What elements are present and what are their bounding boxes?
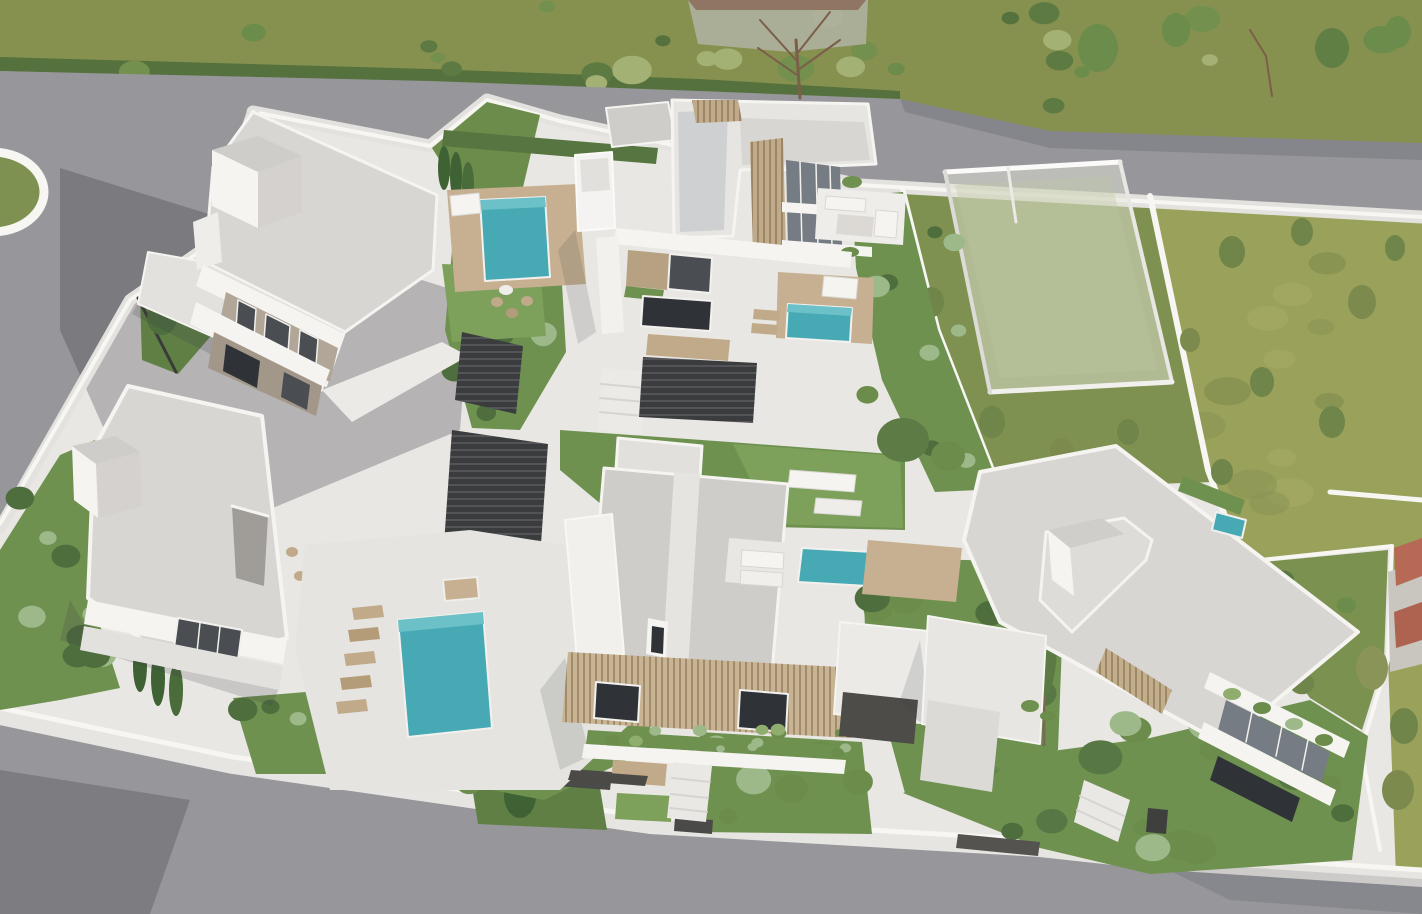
scene-root <box>0 0 1422 914</box>
field-mottle <box>1267 449 1296 467</box>
scrub-bushes <box>420 40 437 52</box>
scrub-bushes <box>655 35 670 46</box>
villa5-ramp <box>920 700 1000 792</box>
villa4-ladder <box>651 626 664 654</box>
poolB-lounger-2 <box>751 323 778 335</box>
villa3-table-1 <box>286 547 298 557</box>
poolA-pouf-2 <box>506 308 518 318</box>
poolA-pouf-3 <box>521 296 533 306</box>
site-plan-render <box>0 0 1422 914</box>
villa2-garage-roof <box>606 102 676 147</box>
topright-tree-2 <box>1162 13 1190 47</box>
villa2-roof-woodstrip-slats <box>692 100 742 123</box>
villa5-se-planter-3 <box>1285 718 1303 730</box>
poolA <box>480 197 550 281</box>
field-mottle <box>1263 350 1295 369</box>
poolD-firepit <box>443 577 479 601</box>
field-olive-4 <box>1250 367 1274 397</box>
villa2-lounge-sofa-2 <box>874 210 898 238</box>
poolA-pouf-1 <box>491 297 503 307</box>
villa4-planter-bushes <box>629 736 643 747</box>
street-lawn <box>615 793 673 822</box>
pergola-2-slats <box>639 357 757 423</box>
central-sofa-2 <box>814 498 862 516</box>
field-olive-2 <box>1291 218 1313 246</box>
villa5-south-bushes <box>1078 740 1122 774</box>
villa4-planter-bushes <box>751 738 763 748</box>
villa2-window-2 <box>641 296 712 331</box>
villa5-se-planter-1 <box>1223 688 1241 700</box>
garden-left-bushes <box>6 487 35 510</box>
villa4-planter-bushes <box>693 725 707 736</box>
scrub-bushes <box>888 63 905 75</box>
villa2-window-1 <box>668 254 712 293</box>
darkwall-gate-4 <box>1146 808 1168 834</box>
field-olive-6 <box>1211 459 1233 485</box>
garden-left-bushes <box>51 545 80 568</box>
scrub-bushes <box>1043 30 1071 50</box>
field-olive-1 <box>1219 236 1245 268</box>
poolC <box>798 548 872 586</box>
central-tree-1 <box>877 418 929 462</box>
enclosure-olive-4 <box>1117 419 1139 445</box>
topright-tree-1 <box>1078 24 1118 72</box>
garden-villa2-east-bushes <box>927 226 942 238</box>
stone-house-roof <box>688 0 866 10</box>
field-olive-3 <box>1348 285 1376 319</box>
garden-villa2-east-bushes <box>920 345 940 361</box>
villa2-wood-wall <box>626 250 670 290</box>
field-mottle <box>1227 470 1277 500</box>
street-right-trees <box>843 769 873 795</box>
villa5-east-trees <box>1337 597 1356 613</box>
scrub-bushes <box>612 56 652 85</box>
villa3-notch <box>232 506 268 586</box>
poolB-daybed <box>822 276 858 299</box>
villa2-lounge-sofa-1 <box>825 196 866 212</box>
villa3-south-bushes <box>228 698 257 722</box>
scrub-bushes <box>242 24 266 41</box>
poolC-daybed-1 <box>741 550 784 569</box>
villa5-south-bushes <box>1331 804 1354 822</box>
villa5-planter-w-2 <box>1040 711 1056 721</box>
poolC-daybed-2 <box>740 570 783 587</box>
villa4-stairs <box>667 762 712 822</box>
scrub-bushes <box>836 56 865 77</box>
poolB-lounger-1 <box>753 309 780 321</box>
villa2-balcony-planter-1 <box>842 176 862 188</box>
central-tree-2 <box>931 441 965 471</box>
garden-villa2-east-bushes <box>943 234 965 251</box>
poolC-deck <box>862 540 962 602</box>
field-mottle <box>1247 306 1289 331</box>
scrub-bushes <box>539 1 555 13</box>
rightedge-olive-3 <box>1382 770 1414 810</box>
street-right-trees <box>775 775 808 803</box>
villa2-pavilion-shade <box>580 158 610 192</box>
scrub-bushes <box>1029 2 1060 24</box>
villa5-planter-w-1 <box>1021 700 1039 712</box>
scrub-bushes <box>1043 98 1065 114</box>
villa4-planter-bushes <box>716 745 725 752</box>
villa4-window-a <box>594 682 640 722</box>
villa5-south-bushes <box>1036 809 1067 833</box>
street-right-trees <box>719 808 738 824</box>
field-mottle <box>1204 377 1251 405</box>
villa2-louvre-slats <box>750 138 786 252</box>
scrub-bushes <box>1046 51 1073 71</box>
poolA-chair <box>499 285 513 295</box>
rightedge-olive-2 <box>1390 708 1418 744</box>
field-mottle <box>1273 283 1312 307</box>
villa4-planter-bushes <box>756 725 769 735</box>
field-olive-8 <box>1180 328 1200 352</box>
villa4-planter-bushes <box>606 735 620 746</box>
villa2-roof-inner <box>678 110 728 232</box>
scrub-bushes <box>697 51 718 66</box>
scrub-bushes <box>1202 54 1218 66</box>
garden-villa2-east-bushes <box>951 325 966 337</box>
topright-tree-4 <box>1385 16 1411 48</box>
enclosure-olive-2 <box>979 406 1005 438</box>
architectural-render-page <box>0 0 1422 914</box>
garden-left-bushes <box>18 606 46 628</box>
villa4-planter-bushes <box>649 726 661 736</box>
poolA-sofa <box>450 193 481 216</box>
garden-left-bushes <box>39 531 56 545</box>
scrub-bushes <box>431 52 445 62</box>
topright-tree-3 <box>1315 28 1349 68</box>
villa5-se-planter-4 <box>1315 734 1333 746</box>
scrub-bushes <box>441 61 462 76</box>
villa5-south-bushes <box>1110 711 1142 736</box>
field-olive-7 <box>1385 235 1405 261</box>
villa5-se-planter-2 <box>1253 702 1271 714</box>
field-olive-5 <box>1319 406 1345 438</box>
pergola-1-slats <box>455 332 523 414</box>
field-mottle <box>1309 252 1346 274</box>
villa5-south-bushes <box>1135 834 1170 861</box>
villa4-planter-bushes <box>771 724 786 736</box>
villa3-south-bushes <box>290 712 307 725</box>
scrub-bushes <box>1002 12 1020 25</box>
villa5-south-bushes <box>1001 823 1023 840</box>
villa4-planter-bushes <box>831 748 844 758</box>
field-mottle <box>1308 319 1335 335</box>
rightedge-olive-1 <box>1356 646 1388 690</box>
villa2-lounge-rug <box>836 214 874 237</box>
villa1-chimney <box>193 212 222 270</box>
garden-villa2-east-bushes <box>856 386 878 404</box>
wedge-cypress-1 <box>438 146 450 190</box>
